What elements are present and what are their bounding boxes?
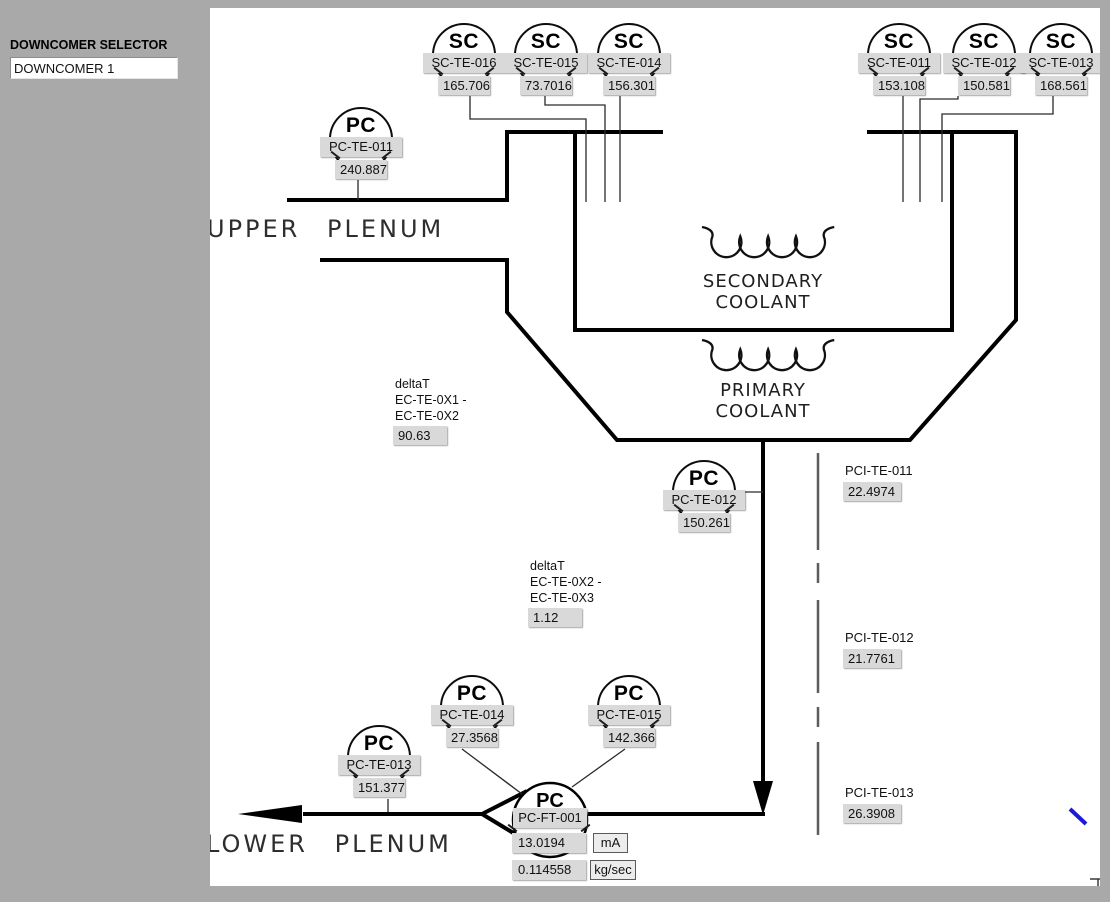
pci-te-012-indicator: PCI-TE-012 21.7761 <box>845 629 925 647</box>
flow-unit-button[interactable]: kg/sec <box>590 860 636 880</box>
delta-t-2-indicator: deltaT EC-TE-0X2 - EC-TE-0X3 1.12 <box>530 558 640 606</box>
pci-label: PCI-TE-013 <box>845 785 914 800</box>
pci-value: 22.4974 <box>843 482 901 501</box>
pci-value: 21.7761 <box>843 649 901 668</box>
instrument-sc-te-013: SC SC-TE-013 168.561 <box>1020 23 1100 115</box>
instrument-sc-te-014: SC SC-TE-014 156.301 <box>588 23 670 115</box>
instrument-value: 151.377 <box>353 778 405 797</box>
pci-value: 26.3908 <box>843 804 901 823</box>
delta-t-value: 1.12 <box>528 608 582 627</box>
instrument-pc-te-013: PC PC-TE-013 151.377 <box>338 725 420 817</box>
instrument-value: 150.261 <box>678 513 730 532</box>
instrument-pc-te-012: PC PC-TE-012 150.261 <box>663 460 745 552</box>
instrument-value: 73.7016 <box>520 76 572 95</box>
instrument-sc-te-016: SC SC-TE-016 165.706 <box>423 23 505 115</box>
lower-plenum-label: LOWER PLENUM <box>210 830 452 858</box>
upper-plenum-label: UPPER PLENUM <box>210 215 444 243</box>
flow-transmitter-current-value: 13.0194 <box>512 833 586 853</box>
instrument-pc-te-014: PC PC-TE-014 27.3568 <box>431 675 513 767</box>
instrument-value: 165.706 <box>438 76 490 95</box>
instrument-value: 27.3568 <box>446 728 498 747</box>
instrument-sc-te-015: SC SC-TE-015 73.7016 <box>505 23 587 115</box>
primary-coolant-coil-icon <box>702 340 834 370</box>
corner-resize-mark <box>1090 879 1100 886</box>
instrument-sc-te-011: SC SC-TE-011 153.108 <box>858 23 940 115</box>
application-window: DOWNCOMER SELECTOR <box>0 0 1110 902</box>
pci-label: PCI-TE-012 <box>845 630 914 645</box>
instrument-pc-te-015: PC PC-TE-015 142.366 <box>588 675 670 767</box>
pci-te-013-indicator: PCI-TE-013 26.3908 <box>845 784 925 802</box>
instrument-value: 156.301 <box>603 76 655 95</box>
instrument-pc-te-011: PC PC-TE-011 240.887 <box>320 107 402 199</box>
diagram-canvas: UPPER PLENUM LOWER PLENUM SECONDARY COOL… <box>210 8 1100 886</box>
secondary-coolant-coil-icon <box>702 227 834 257</box>
down-arrow-icon <box>753 781 773 815</box>
secondary-coolant-label: SECONDARY COOLANT <box>673 271 853 313</box>
flow-transmitter-flow-value: 0.114558 <box>512 860 586 880</box>
delta-t-value: 90.63 <box>393 426 447 445</box>
instrument-value: 153.108 <box>873 76 925 95</box>
instrument-value: 240.887 <box>335 160 387 179</box>
flow-transmitter-tag: PC-FT-001 <box>513 808 587 828</box>
instrument-value: 168.561 <box>1035 76 1087 95</box>
downcomer-selector-input[interactable] <box>10 57 178 79</box>
current-unit-button[interactable]: mA <box>593 833 628 853</box>
primary-coolant-label: PRIMARY COOLANT <box>673 380 853 422</box>
left-arrow-icon <box>238 805 302 823</box>
pci-label: PCI-TE-011 <box>845 463 913 478</box>
instrument-sc-te-012: SC SC-TE-012 150.581 <box>943 23 1025 115</box>
blue-annotation-mark <box>1070 809 1086 824</box>
downcomer-selector-label: DOWNCOMER SELECTOR <box>10 38 167 52</box>
instrument-value: 142.366 <box>603 728 655 747</box>
pci-te-011-indicator: PCI-TE-011 22.4974 <box>845 462 925 480</box>
delta-t-1-indicator: deltaT EC-TE-0X1 - EC-TE-0X2 90.63 <box>395 376 505 424</box>
instrument-value: 150.581 <box>958 76 1010 95</box>
